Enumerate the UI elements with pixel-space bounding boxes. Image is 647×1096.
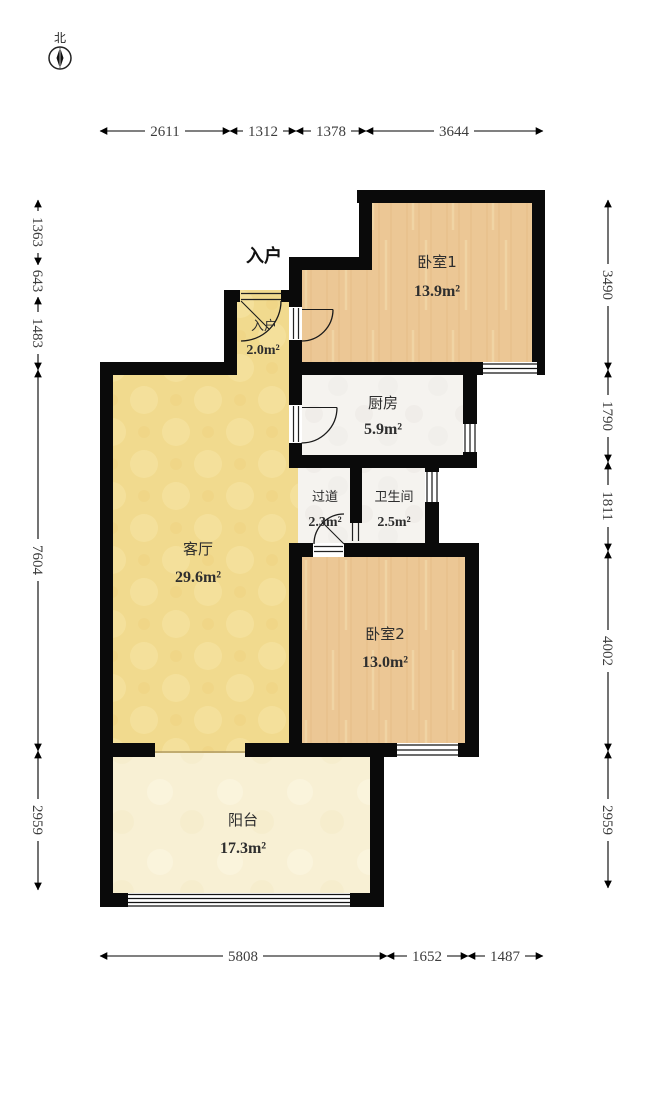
wall xyxy=(100,893,128,907)
wall xyxy=(245,743,302,757)
wall xyxy=(100,362,237,375)
entry-area: 2.0m² xyxy=(246,343,279,358)
bathroom-door-floor xyxy=(350,523,362,543)
bedroom2-floor xyxy=(302,557,465,743)
wall xyxy=(463,375,477,424)
room-floors xyxy=(113,190,532,893)
dim-bottom-3: 1487 xyxy=(490,949,521,965)
compass-north-label: 北 xyxy=(54,31,66,45)
bedroom1-area: 13.9m² xyxy=(414,283,460,300)
wall xyxy=(100,375,113,907)
dim-right-1: 3490 xyxy=(599,270,615,300)
wall xyxy=(532,190,545,375)
bedroom1-floor-extension xyxy=(302,257,372,375)
wall xyxy=(281,290,302,302)
bedroom2-name: 卧室2 xyxy=(365,625,405,643)
balcony-area: 17.3m² xyxy=(220,840,266,857)
bathroom-window xyxy=(425,472,439,502)
dim-left-1: 1363 xyxy=(29,217,45,247)
dimension-top: 2611 1312 1378 3644 xyxy=(100,124,543,141)
bedroom2-window xyxy=(397,743,458,757)
hallway-area: 2.3m² xyxy=(308,515,341,530)
dim-top-1: 2611 xyxy=(150,124,179,140)
wall xyxy=(370,743,384,907)
wall xyxy=(100,743,155,757)
dim-right-5: 2959 xyxy=(599,805,615,835)
kitchen-name: 厨房 xyxy=(368,394,398,412)
dimension-left: 1363 643 1483 7604 2959 xyxy=(29,200,45,890)
dim-left-2: 643 xyxy=(29,270,45,293)
wall xyxy=(289,362,483,375)
wall xyxy=(357,190,545,203)
dim-left-5: 2959 xyxy=(29,805,45,835)
kitchen-floor xyxy=(302,375,463,455)
wall xyxy=(425,468,439,472)
balcony-name: 阳台 xyxy=(228,811,258,829)
wall xyxy=(289,257,372,270)
dimension-right: 3490 1790 1811 4002 2959 xyxy=(599,200,615,888)
entrance-label: 入户 xyxy=(246,245,282,267)
kitchen-window xyxy=(463,424,477,452)
bedroom1-name: 卧室1 xyxy=(417,253,457,271)
wall xyxy=(289,375,302,405)
living-name: 客厅 xyxy=(183,540,213,558)
living-room-floor xyxy=(113,375,289,743)
dim-right-3: 1811 xyxy=(599,491,615,520)
bedroom2-area: 13.0m² xyxy=(362,654,408,671)
dim-top-4: 3644 xyxy=(439,124,470,140)
wall xyxy=(289,455,477,468)
bedroom1-window xyxy=(483,362,537,375)
dim-bottom-1: 5808 xyxy=(228,949,258,965)
kitchen-area: 5.9m² xyxy=(364,421,402,438)
dim-right-4: 4002 xyxy=(599,636,615,666)
floor-plan-canvas: 入户 卧室1 13.9m² 入户 2.0m² 厨房 5.9m² 过道 2.3m²… xyxy=(0,0,647,1096)
dim-left-4: 7604 xyxy=(29,545,45,576)
dim-top-3: 1378 xyxy=(316,124,346,140)
wall xyxy=(289,557,302,757)
living-area: 29.6m² xyxy=(175,569,221,586)
wall xyxy=(344,543,479,557)
wall xyxy=(350,893,384,907)
dim-bottom-2: 1652 xyxy=(412,949,442,965)
compass: 北 xyxy=(49,31,71,69)
balcony-window xyxy=(128,893,350,907)
wall xyxy=(537,362,545,375)
bathroom-area: 2.5m² xyxy=(377,515,410,530)
bathroom-name: 卫生间 xyxy=(374,490,413,505)
bathroom-floor xyxy=(362,468,425,543)
dim-top-2: 1312 xyxy=(248,124,278,140)
dim-right-2: 1790 xyxy=(599,401,615,431)
hallway-floor xyxy=(298,468,350,543)
wall xyxy=(224,290,240,302)
wall xyxy=(289,543,313,557)
hallway-name: 过道 xyxy=(312,490,338,505)
wall xyxy=(465,557,479,757)
floor-plan-page: 入户 卧室1 13.9m² 入户 2.0m² 厨房 5.9m² 过道 2.3m²… xyxy=(0,0,647,1096)
wall xyxy=(350,468,362,523)
dimension-bottom: 5808 1652 1487 xyxy=(100,949,543,966)
entry-name: 入户 xyxy=(251,318,277,334)
dim-left-3: 1483 xyxy=(29,318,45,348)
wall xyxy=(458,743,479,757)
